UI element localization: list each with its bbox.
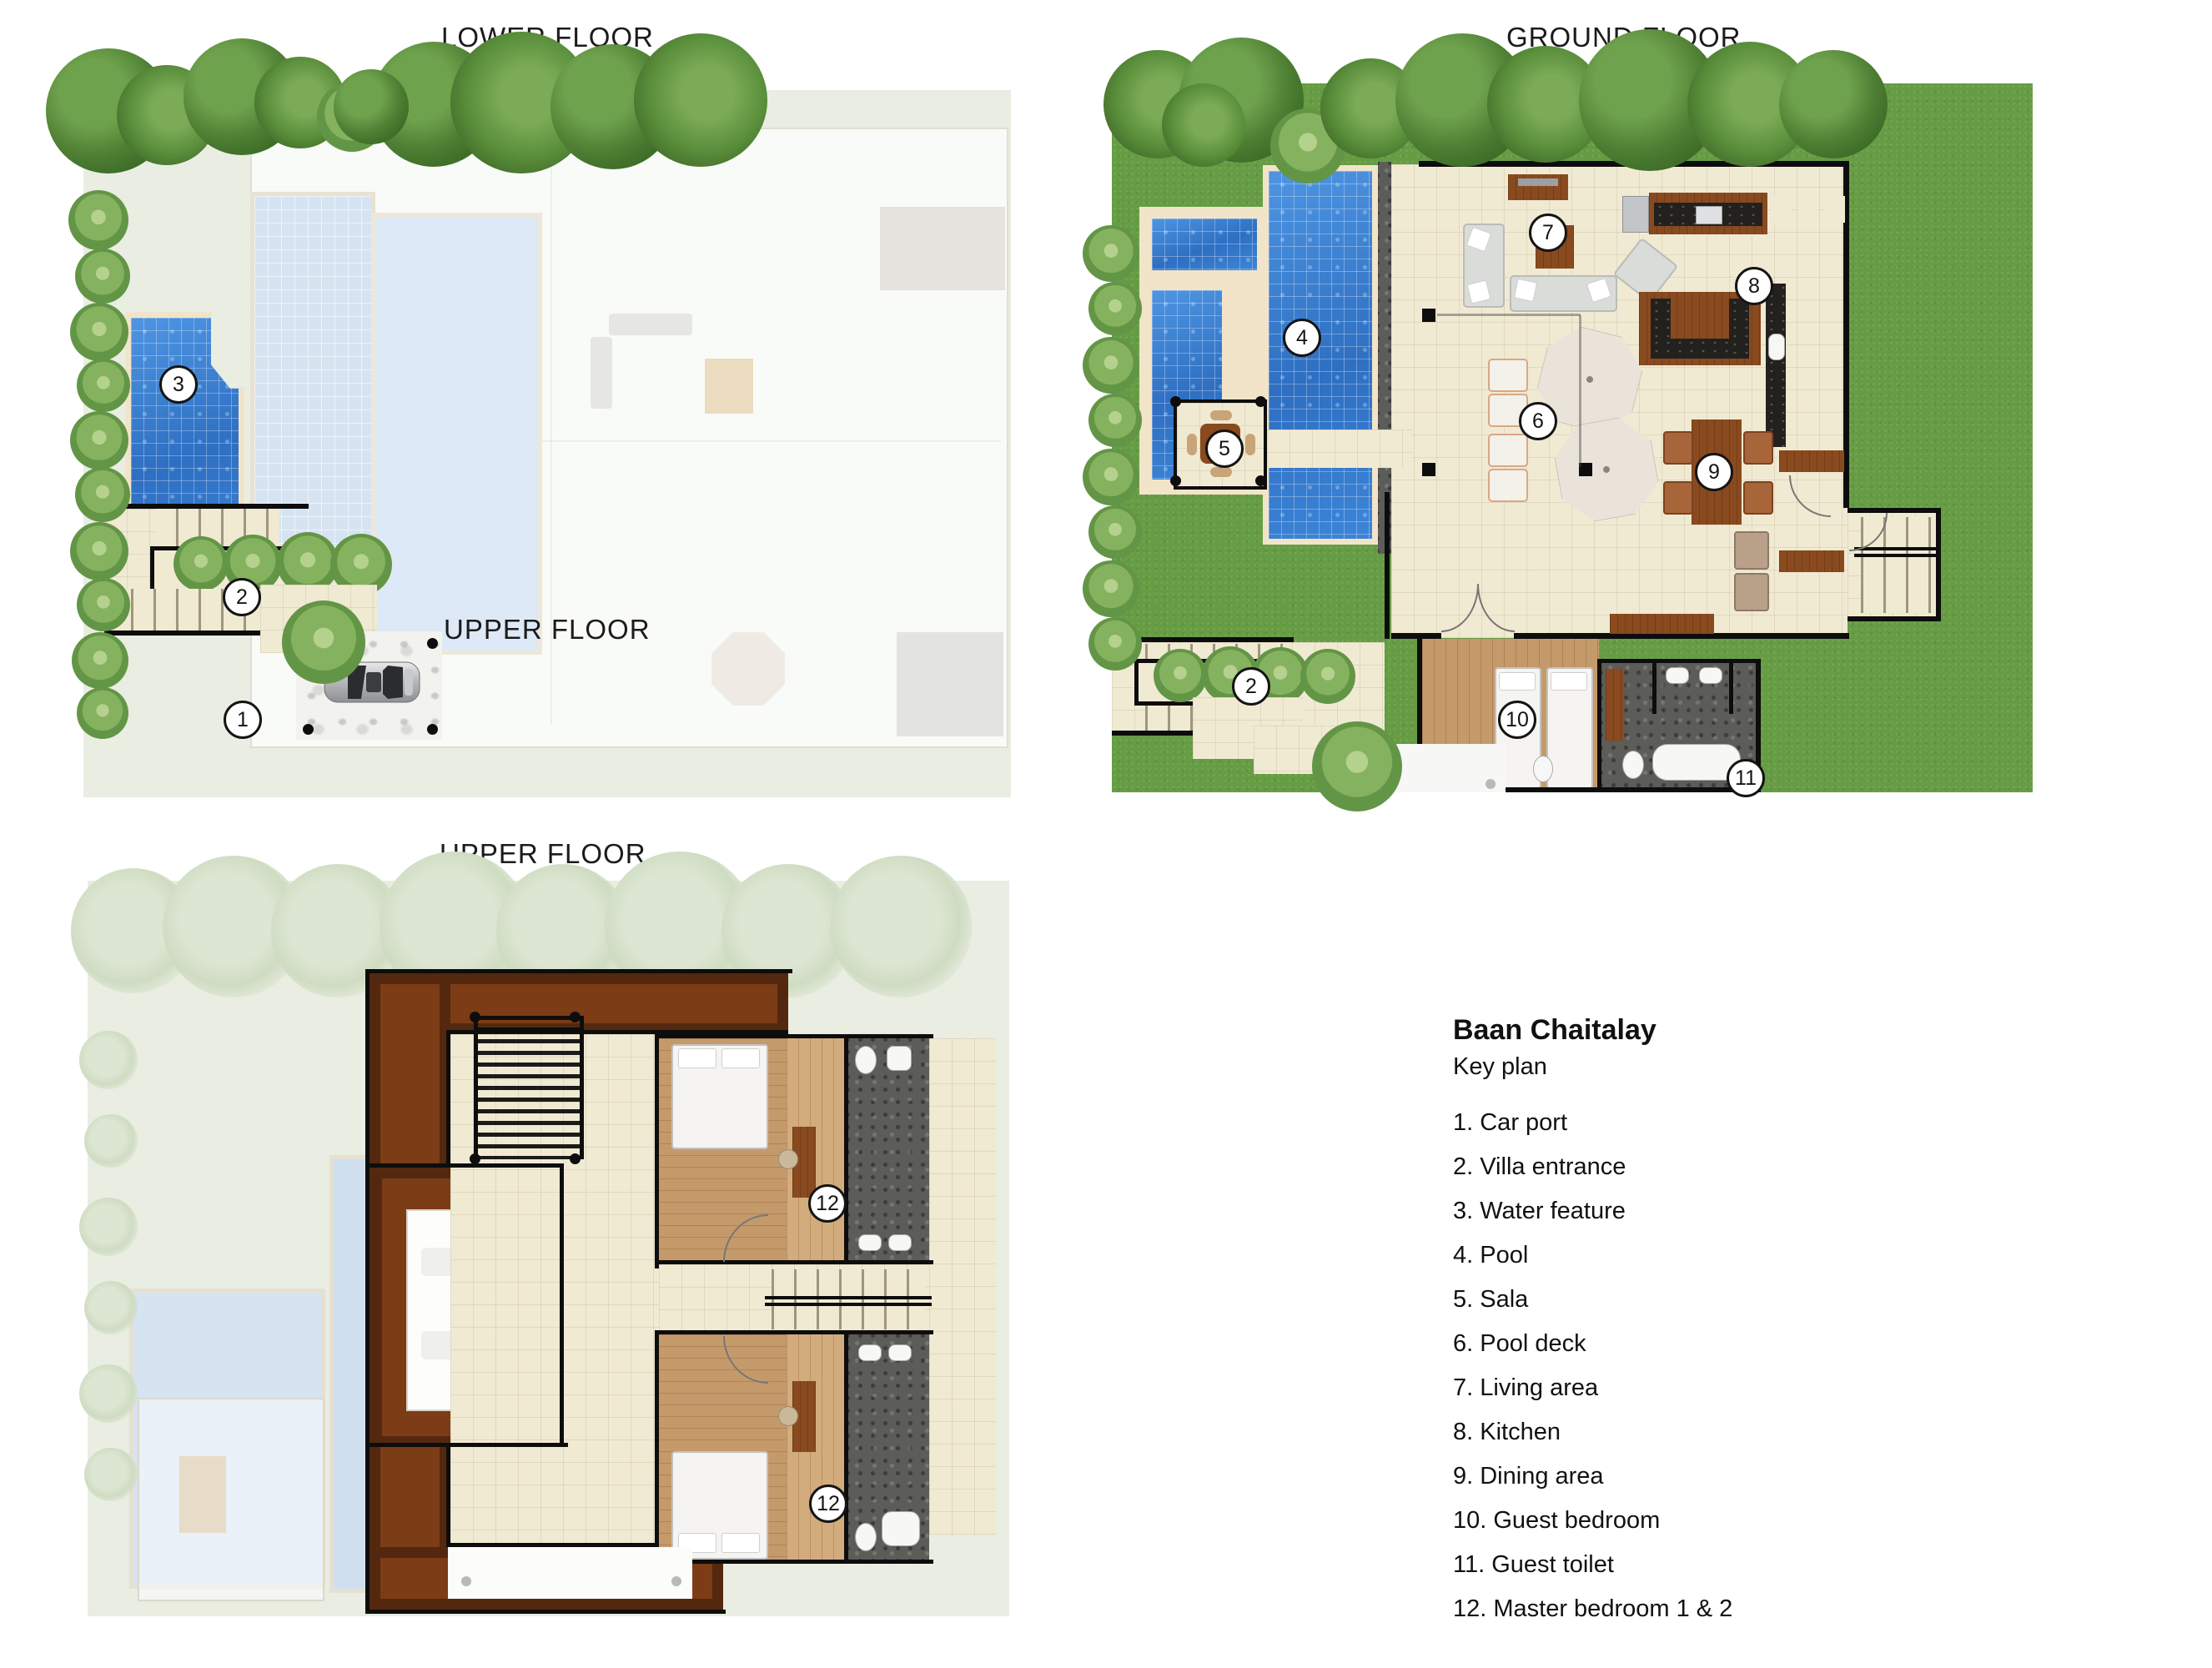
upper-floor-plan [88,881,1009,1616]
wall [1597,659,1761,663]
carport-post [303,724,314,735]
palm [1083,560,1139,617]
upper-pond [1146,213,1263,276]
sliding-door [1579,315,1581,467]
faded-tree [830,856,972,997]
kitchen-side-counter [1766,284,1786,447]
upper-floor-inset-label: UPPER FLOOR [444,614,651,646]
ghost-dining-table [705,359,753,414]
cooktop [1696,206,1722,224]
sink [858,1234,882,1251]
fridge [1622,196,1649,233]
entrance-wall [104,631,271,636]
palm [1088,282,1142,335]
marker-number: 2 [236,587,248,608]
ghost-room [138,1398,324,1601]
wall [365,969,792,973]
keyplan-item: 1. Car port [1453,1101,1920,1145]
column [1422,309,1435,322]
faded-palm [84,1448,138,1501]
wall [844,1334,848,1560]
wall [655,1330,933,1334]
tree [1162,83,1245,167]
dining-chair [1663,431,1693,465]
bathtub [882,1511,920,1546]
wall [560,1163,564,1447]
carport-post [427,724,438,735]
console-table [1610,614,1714,634]
wall [1848,616,1941,621]
marker-villa-entrance-ground: 2 [1232,667,1270,706]
toilet-partition [1729,659,1733,714]
faded-palm [84,1114,138,1168]
lounger [1488,359,1528,392]
planter-palm [173,536,229,591]
keyplan-item: 8. Kitchen [1453,1410,1920,1454]
keyplan-item: 3. Water feature [1453,1189,1920,1233]
marker-pool-deck: 6 [1519,402,1557,440]
sala-chair [1245,434,1255,455]
key-plan: Baan Chaitalay Key plan 1. Car port 2. V… [1453,1014,1920,1631]
marker-living-area: 7 [1529,214,1567,252]
balcony-pad [448,1547,692,1599]
sink [1666,667,1689,684]
sala-post [1255,396,1266,407]
keyplan-item: 10. Guest bedroom [1453,1499,1920,1543]
palm [75,467,130,522]
ghost-pool-large [371,213,542,655]
pillow [1551,672,1587,691]
palm [1083,225,1139,282]
tree [334,69,409,144]
pergola-post [570,1012,581,1022]
palm [75,249,130,304]
dining-chair [1663,481,1693,515]
ghost-umbrella [711,632,785,706]
pillow [1499,672,1536,691]
hall-chair [1734,573,1769,611]
tree [634,33,767,167]
marker-water-feature: 3 [159,365,198,404]
marker-number: 12 [816,1193,839,1214]
sink [888,1344,912,1361]
wall [1597,659,1601,792]
sala-chair [1210,410,1232,420]
faded-palm [79,1198,138,1256]
palm [1083,449,1139,505]
cushion [1514,279,1537,302]
ghost-bathroom [897,632,1003,736]
toilet [1622,751,1644,779]
marker-car-port: 1 [224,701,262,739]
marker-guest-toilet: 11 [1727,759,1765,797]
shower [887,1046,912,1071]
marker-number: 2 [1245,676,1257,697]
kitchen-sink [1768,334,1785,360]
kitchen-island-top [1729,299,1749,359]
pergola-post [470,1012,480,1022]
door-threshold [1779,550,1844,572]
terrace-floor-right [929,1038,996,1535]
faded-palm [79,1031,138,1089]
wall [446,1030,450,1168]
keyplan-item: 12. Master bedroom 1 & 2 [1453,1587,1920,1631]
pad-dot [671,1576,681,1586]
toilet [855,1523,877,1551]
palm [72,632,128,689]
sala-post [1170,396,1181,407]
marker-sala: 5 [1205,430,1244,468]
keyplan-item: 9. Dining area [1453,1454,1920,1499]
wall [446,1447,450,1547]
palm-tree [282,600,365,684]
tree [1779,50,1888,158]
wall [655,1330,659,1564]
wall [655,1260,933,1264]
marker-villa-entrance-lower: 2 [223,578,261,616]
marker-master-bedroom-2: 12 [809,1485,847,1523]
keyplan-item: 5. Sala [1453,1278,1920,1322]
marker-number: 4 [1296,328,1308,349]
wall [655,1560,933,1564]
door-threshold [1779,450,1844,472]
sink [1699,667,1722,684]
marker-master-bedroom-1: 12 [808,1184,847,1223]
main-pool [1263,165,1378,545]
keyplan-item: 7. Living area [1453,1366,1920,1410]
stairs [772,1269,926,1329]
pad-dot [461,1576,471,1586]
wall [1391,633,1441,639]
pillow [721,1533,760,1553]
dining-chair [1743,481,1773,515]
keyplan-item: 2. Villa entrance [1453,1145,1920,1189]
palm [77,578,130,631]
keyplan-list: 1. Car port 2. Villa entrance 3. Water f… [1453,1101,1920,1631]
marker-number: 1 [237,710,249,731]
wall [844,1038,848,1264]
wall [1385,492,1390,639]
sala-chair [1210,467,1232,477]
stepping-stone [1825,196,1845,223]
stair-rail [765,1296,932,1299]
palm [77,359,130,412]
marker-number: 7 [1542,223,1554,244]
carport-post [427,638,438,649]
bedside-fixture [1533,756,1553,782]
faded-palm [84,1281,138,1334]
marker-pool: 4 [1283,319,1321,357]
ghost-sofa [609,314,692,335]
lounger [1488,434,1528,467]
palm [77,687,128,739]
keyplan-item: 11. Guest toilet [1453,1543,1920,1587]
stepping-stone [1772,196,1792,223]
marker-dining-area: 9 [1695,453,1733,491]
planter-palm [1300,649,1355,704]
floorplan-sheet: LOWER FLOOR GROUND FLOOR UPPER FLOOR UPP… [0,0,2212,1668]
sala-chair [1187,434,1197,455]
faded-palm [79,1364,138,1423]
wall [365,969,370,1614]
desk-chair [778,1406,798,1426]
sliding-door [1437,314,1581,316]
lower-floor-plan [83,90,1011,797]
palm-tree [1312,721,1402,811]
palm [1083,337,1139,394]
palm [70,522,128,580]
palm [1088,394,1142,447]
marker-number: 5 [1219,439,1230,460]
tv [1518,178,1558,186]
column [1422,463,1435,476]
keyplan-item: 4. Pool [1453,1233,1920,1278]
pad-dot [1486,779,1496,789]
stair-rail [765,1303,932,1306]
wall [1936,508,1941,621]
villa-name: Baan Chaitalay [1453,1014,1920,1047]
wall [655,1034,659,1269]
stepping-stone [1798,196,1818,223]
stair-rail [1854,554,1938,557]
pergola-post [470,1153,480,1164]
sala-post [1170,475,1181,486]
toilet [855,1046,877,1074]
desk-chair [778,1149,798,1169]
pergola [474,1016,584,1159]
wall [367,1443,568,1447]
wall [365,1610,726,1614]
marker-number: 8 [1748,276,1760,297]
toilet-partition [1652,659,1656,714]
pergola-post [570,1153,581,1164]
marker-kitchen: 8 [1735,267,1773,305]
marker-number: 3 [173,374,184,395]
planter-palm [1154,649,1207,702]
marker-number: 12 [817,1494,840,1515]
marker-number: 10 [1506,710,1529,731]
pillow [678,1048,716,1068]
palm [1088,505,1142,559]
keyplan-subtitle: Key plan [1453,1053,1920,1081]
stair-rail [1854,547,1938,550]
marker-number: 6 [1532,411,1544,432]
dining-chair [1743,431,1773,465]
keyplan-item: 6. Pool deck [1453,1322,1920,1366]
hall-chair [1734,531,1769,570]
ghost-sofa [591,337,612,409]
marker-number: 9 [1708,462,1720,483]
sala-post [1255,475,1266,486]
pillow [721,1048,760,1068]
toilet-wardrobe [1606,669,1624,741]
ghost-table [179,1456,226,1533]
lounger [1488,469,1528,502]
wall [655,1034,933,1038]
wall [1514,633,1849,639]
palm [68,190,128,250]
palm [70,411,128,470]
ghost-kitchen [880,207,1005,290]
palm [70,303,128,361]
palm [1088,617,1142,671]
sink [888,1234,912,1251]
wall [367,1163,564,1168]
marker-number: 11 [1735,768,1757,789]
pool-bridge [1267,430,1412,468]
sink [858,1344,882,1361]
marker-guest-bedroom: 10 [1498,701,1536,739]
